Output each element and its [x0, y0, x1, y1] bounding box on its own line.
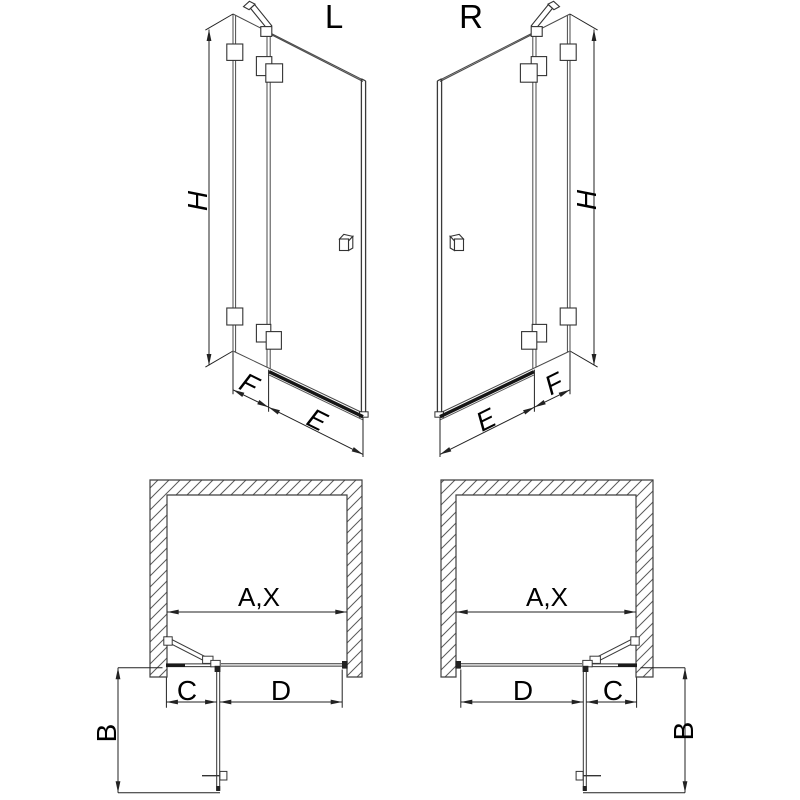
dim-label-b-right: B — [668, 722, 699, 741]
dim-label-c-left: C — [177, 675, 197, 706]
dim-label-d-left: D — [271, 675, 291, 706]
dim-label-opening-left: A,X — [238, 582, 280, 612]
dim-label-height-left: H — [182, 190, 213, 211]
diagram-canvas: L R H H F E E F A,X A,X C D D C B B — [0, 0, 800, 800]
elevation-right-view — [435, 1, 598, 457]
elevation-right-label: R — [459, 0, 483, 35]
elevation-right-geometry — [435, 1, 598, 457]
dim-label-door-left: E — [302, 403, 332, 438]
elevation-left-view — [205, 1, 368, 457]
dim-label-opening-right: A,X — [526, 582, 568, 612]
dim-label-fixed-right: F — [540, 366, 569, 401]
dim-label-fixed-left: F — [235, 367, 264, 402]
dim-label-b-left: B — [91, 724, 122, 743]
elevation-left-geometry — [205, 1, 368, 457]
dim-label-height-right: H — [571, 189, 602, 210]
dim-label-d-right: D — [513, 675, 533, 706]
elevation-left-label: L — [325, 0, 343, 35]
shower-door-technical-diagram: L R H H F E E F A,X A,X C D D C B B — [0, 0, 800, 800]
dim-label-c-right: C — [603, 675, 623, 706]
dim-label-door-right: E — [471, 402, 501, 437]
